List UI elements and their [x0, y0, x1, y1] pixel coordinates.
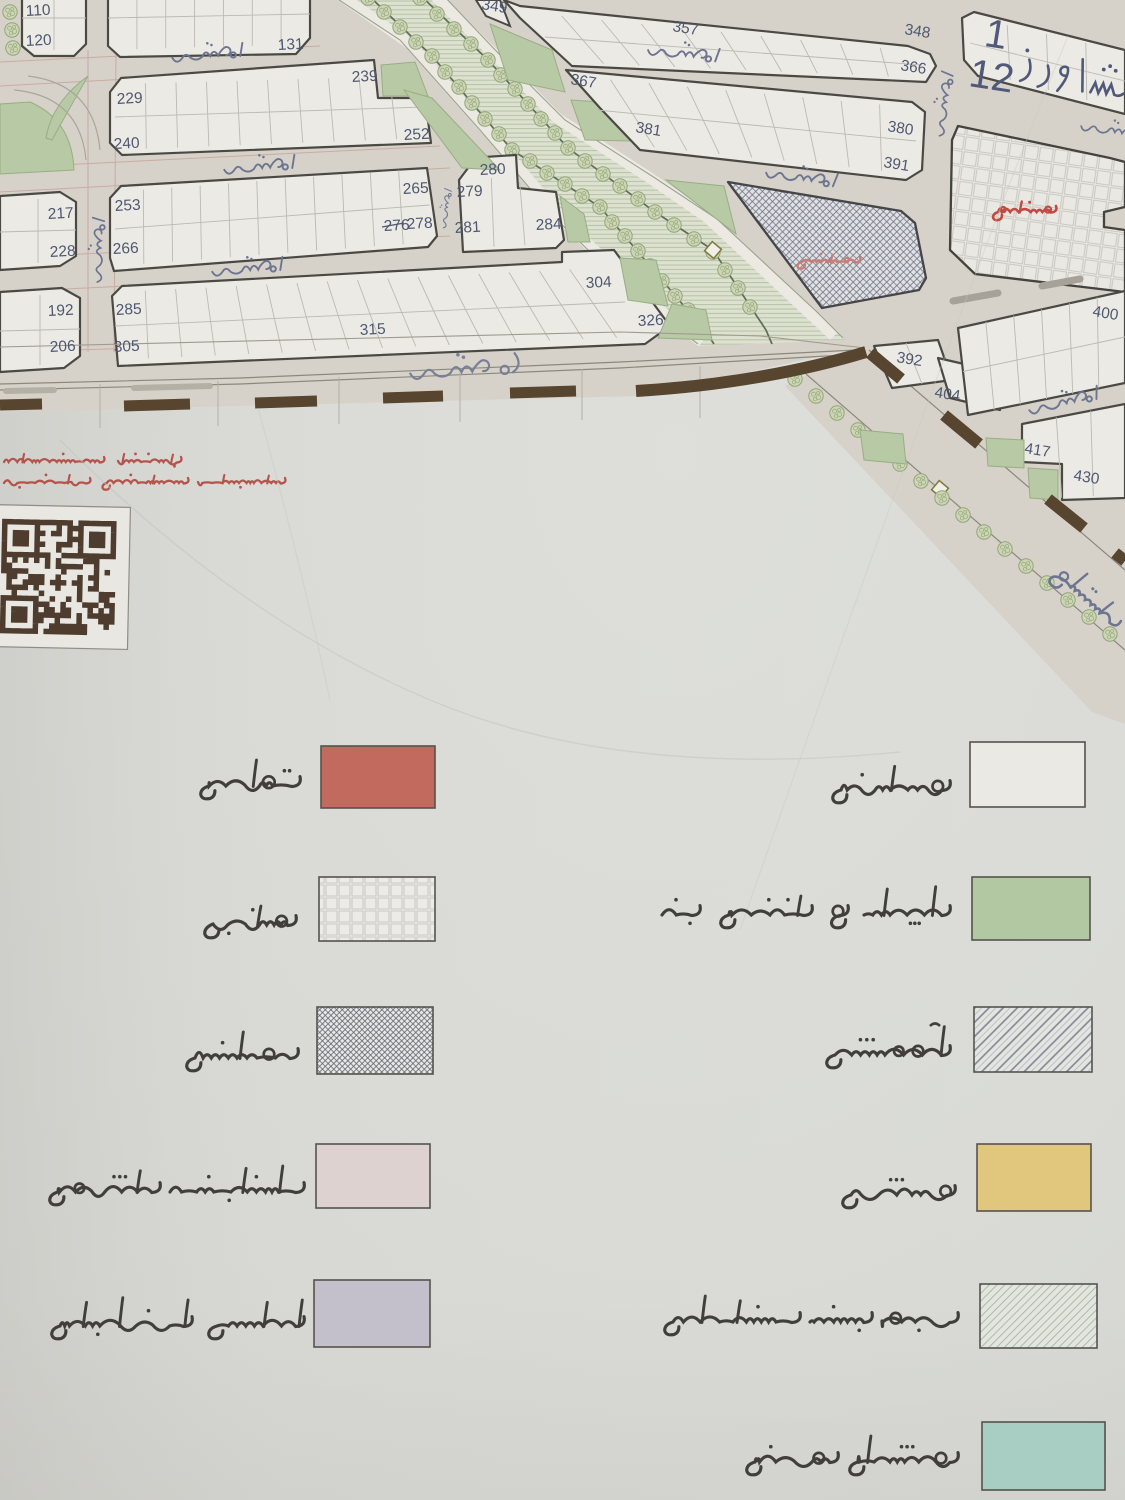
svg-text:280: 280 [479, 161, 506, 179]
svg-text:326: 326 [637, 312, 664, 330]
svg-text:304: 304 [585, 274, 612, 292]
svg-text:131: 131 [277, 36, 304, 54]
svg-text:120: 120 [25, 32, 52, 50]
svg-text:206: 206 [49, 338, 76, 356]
svg-text:265: 265 [402, 180, 429, 198]
svg-text:284: 284 [535, 216, 562, 234]
svg-text:285: 285 [115, 301, 142, 319]
svg-text:253: 253 [114, 197, 141, 215]
svg-text:110: 110 [25, 2, 51, 20]
svg-text:12: 12 [966, 51, 1017, 101]
svg-text:281: 281 [454, 219, 481, 237]
svg-text:252: 252 [403, 126, 430, 144]
svg-text:228: 228 [49, 243, 76, 261]
svg-text:279: 279 [456, 183, 483, 201]
svg-text:239: 239 [351, 68, 378, 86]
svg-text:229: 229 [116, 90, 143, 108]
svg-text:266: 266 [112, 240, 139, 258]
svg-text:217: 217 [47, 205, 74, 223]
svg-text:192: 192 [47, 302, 74, 320]
svg-text:278: 278 [406, 215, 433, 233]
svg-text:240: 240 [113, 135, 140, 153]
svg-text:305: 305 [113, 338, 140, 356]
svg-text:315: 315 [359, 321, 386, 339]
